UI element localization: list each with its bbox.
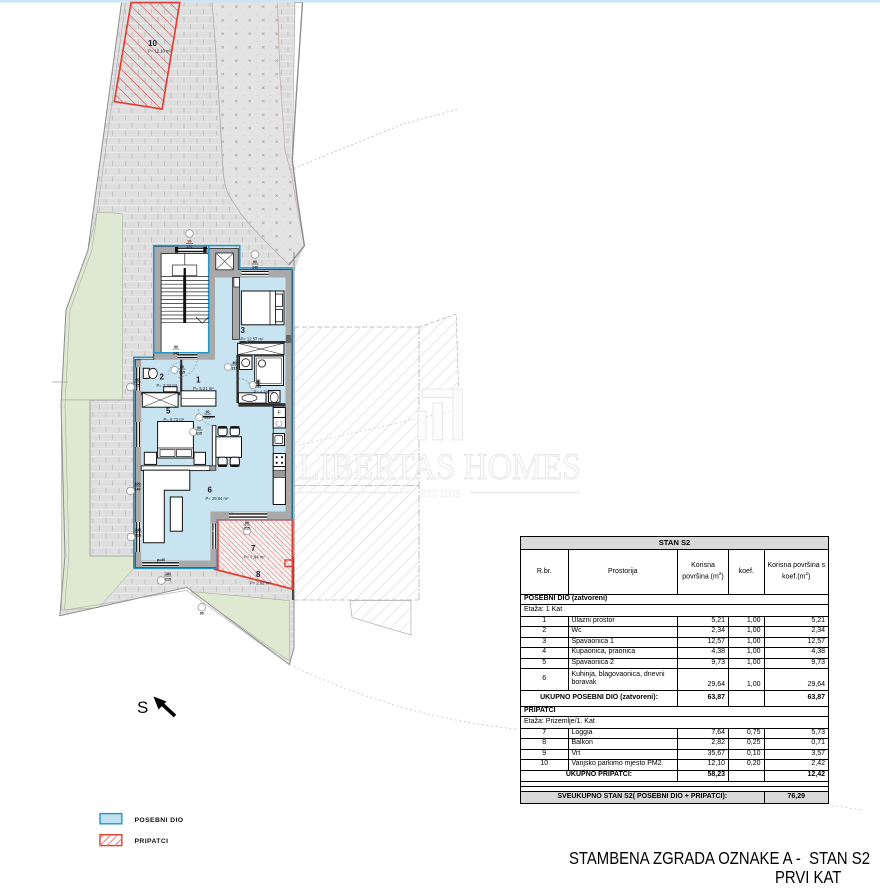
- svg-text:140: 140: [135, 488, 141, 492]
- svg-text:P= 9.73 m²: P= 9.73 m²: [164, 417, 185, 422]
- svg-text:p=40: p=40: [157, 558, 165, 562]
- svg-text:P= 12.10 m²: P= 12.10 m²: [148, 49, 172, 54]
- svg-text:LIBERTAS HOMES: LIBERTAS HOMES: [299, 447, 581, 488]
- svg-text:90: 90: [197, 426, 201, 430]
- svg-text:75: 75: [136, 384, 140, 388]
- svg-text:90: 90: [245, 521, 249, 525]
- svg-text:10: 10: [148, 39, 157, 48]
- svg-text:80: 80: [180, 365, 184, 369]
- svg-text:215: 215: [165, 578, 171, 582]
- svg-text:P= 5.21 m²: P= 5.21 m²: [193, 386, 214, 391]
- svg-text:90: 90: [174, 345, 178, 349]
- svg-text:180: 180: [165, 572, 171, 576]
- svg-text:215: 215: [244, 527, 250, 531]
- svg-text:90: 90: [200, 612, 204, 616]
- svg-text:215: 215: [135, 534, 141, 538]
- svg-text:PRIPATCI: PRIPATCI: [135, 838, 169, 845]
- svg-text:POSEBNI DIO: POSEBNI DIO: [135, 817, 184, 824]
- svg-text:215: 215: [196, 432, 202, 436]
- svg-text:1: 1: [196, 376, 201, 385]
- svg-text:240: 240: [173, 352, 179, 356]
- svg-text:6: 6: [208, 486, 213, 495]
- svg-text:P= 29.64 m²: P= 29.64 m²: [206, 496, 230, 501]
- svg-text:140: 140: [135, 528, 141, 532]
- svg-text:P= 4.38 m²: P= 4.38 m²: [254, 390, 275, 395]
- svg-text:P= 7.64 m²: P= 7.64 m²: [244, 555, 265, 560]
- svg-text:215: 215: [232, 367, 238, 371]
- svg-text:7: 7: [251, 544, 256, 553]
- svg-text:60: 60: [136, 378, 140, 382]
- svg-text:215: 215: [205, 416, 211, 420]
- svg-text:P= 2.34 m²: P= 2.34 m²: [157, 383, 178, 388]
- svg-text:90: 90: [206, 410, 210, 414]
- svg-text:215: 215: [179, 371, 185, 375]
- svg-text:240: 240: [252, 266, 258, 270]
- svg-text:P= 12.57 m²: P= 12.57 m²: [241, 337, 265, 342]
- svg-text:EST 2003: EST 2003: [420, 489, 460, 500]
- svg-text:8: 8: [256, 570, 261, 579]
- svg-text:S: S: [137, 698, 148, 717]
- svg-text:P= 2.82 m²: P= 2.82 m²: [250, 581, 271, 586]
- svg-text:2: 2: [160, 373, 165, 382]
- svg-text:240: 240: [187, 245, 193, 249]
- svg-text:80: 80: [233, 361, 237, 365]
- svg-text:215: 215: [255, 385, 261, 389]
- svg-text:3: 3: [241, 326, 246, 335]
- svg-text:100: 100: [135, 482, 141, 486]
- svg-text:90: 90: [188, 240, 192, 244]
- svg-text:90: 90: [253, 260, 257, 264]
- svg-text:5: 5: [166, 407, 171, 416]
- svg-text:80: 80: [256, 379, 260, 383]
